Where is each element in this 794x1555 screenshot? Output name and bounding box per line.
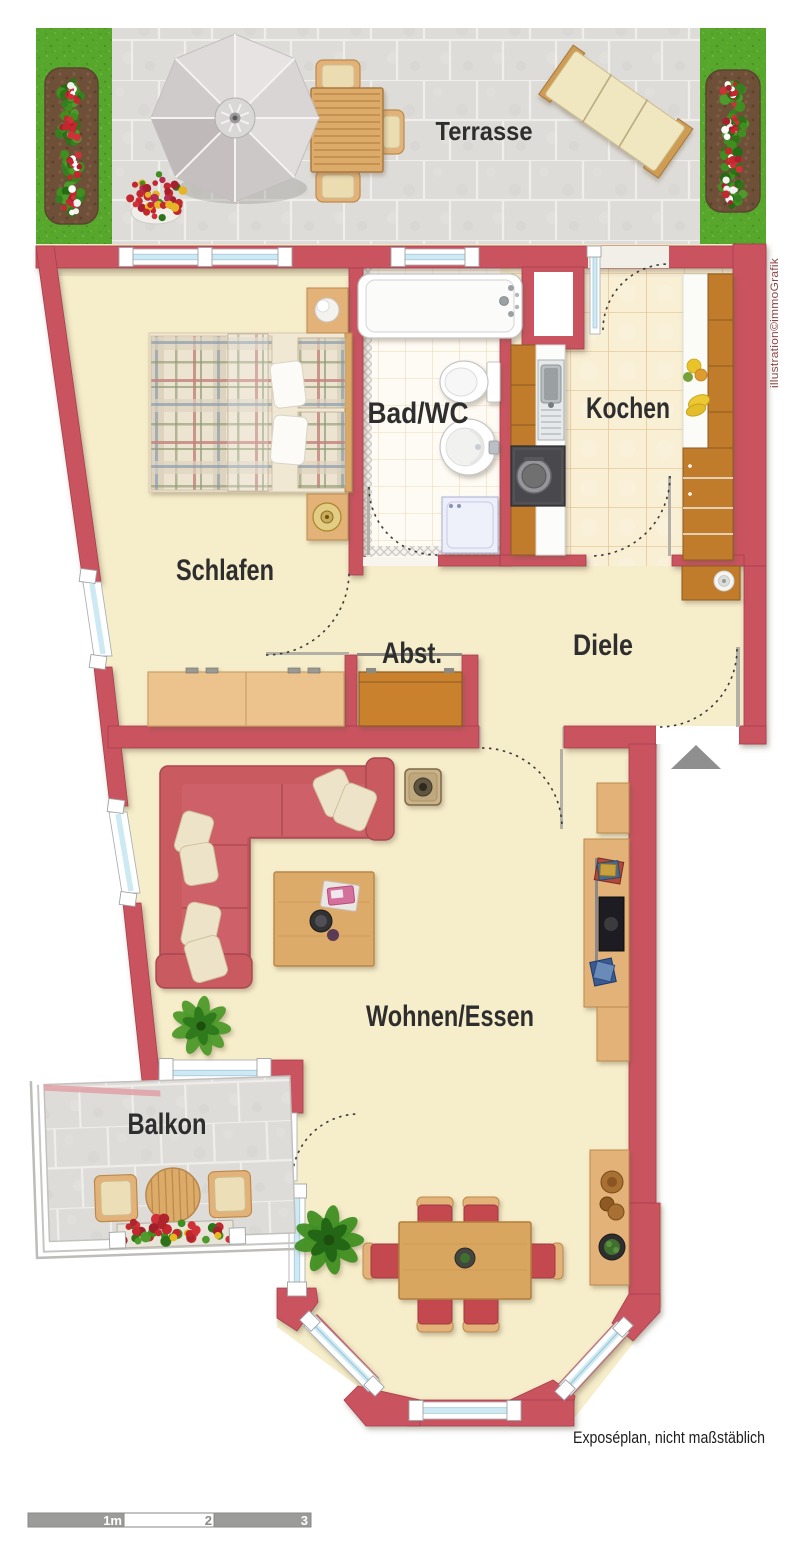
svg-text:Balkon: Balkon [128,1108,207,1141]
svg-text:illustration©immoGrafik: illustration©immoGrafik [769,258,781,388]
svg-text:Exposéplan, nicht maßstäblich: Exposéplan, nicht maßstäblich [573,1428,765,1447]
svg-text:2: 2 [205,1513,212,1528]
svg-text:Diele: Diele [573,629,633,662]
svg-text:Schlafen: Schlafen [176,554,274,587]
svg-text:Kochen: Kochen [586,392,670,425]
svg-text:Bad/WC: Bad/WC [368,397,469,430]
svg-text:1m: 1m [103,1513,122,1528]
svg-text:3: 3 [301,1513,308,1528]
svg-text:Wohnen/Essen: Wohnen/Essen [366,1000,534,1033]
svg-text:Abst.: Abst. [382,637,442,670]
svg-text:Terrasse: Terrasse [436,116,533,146]
